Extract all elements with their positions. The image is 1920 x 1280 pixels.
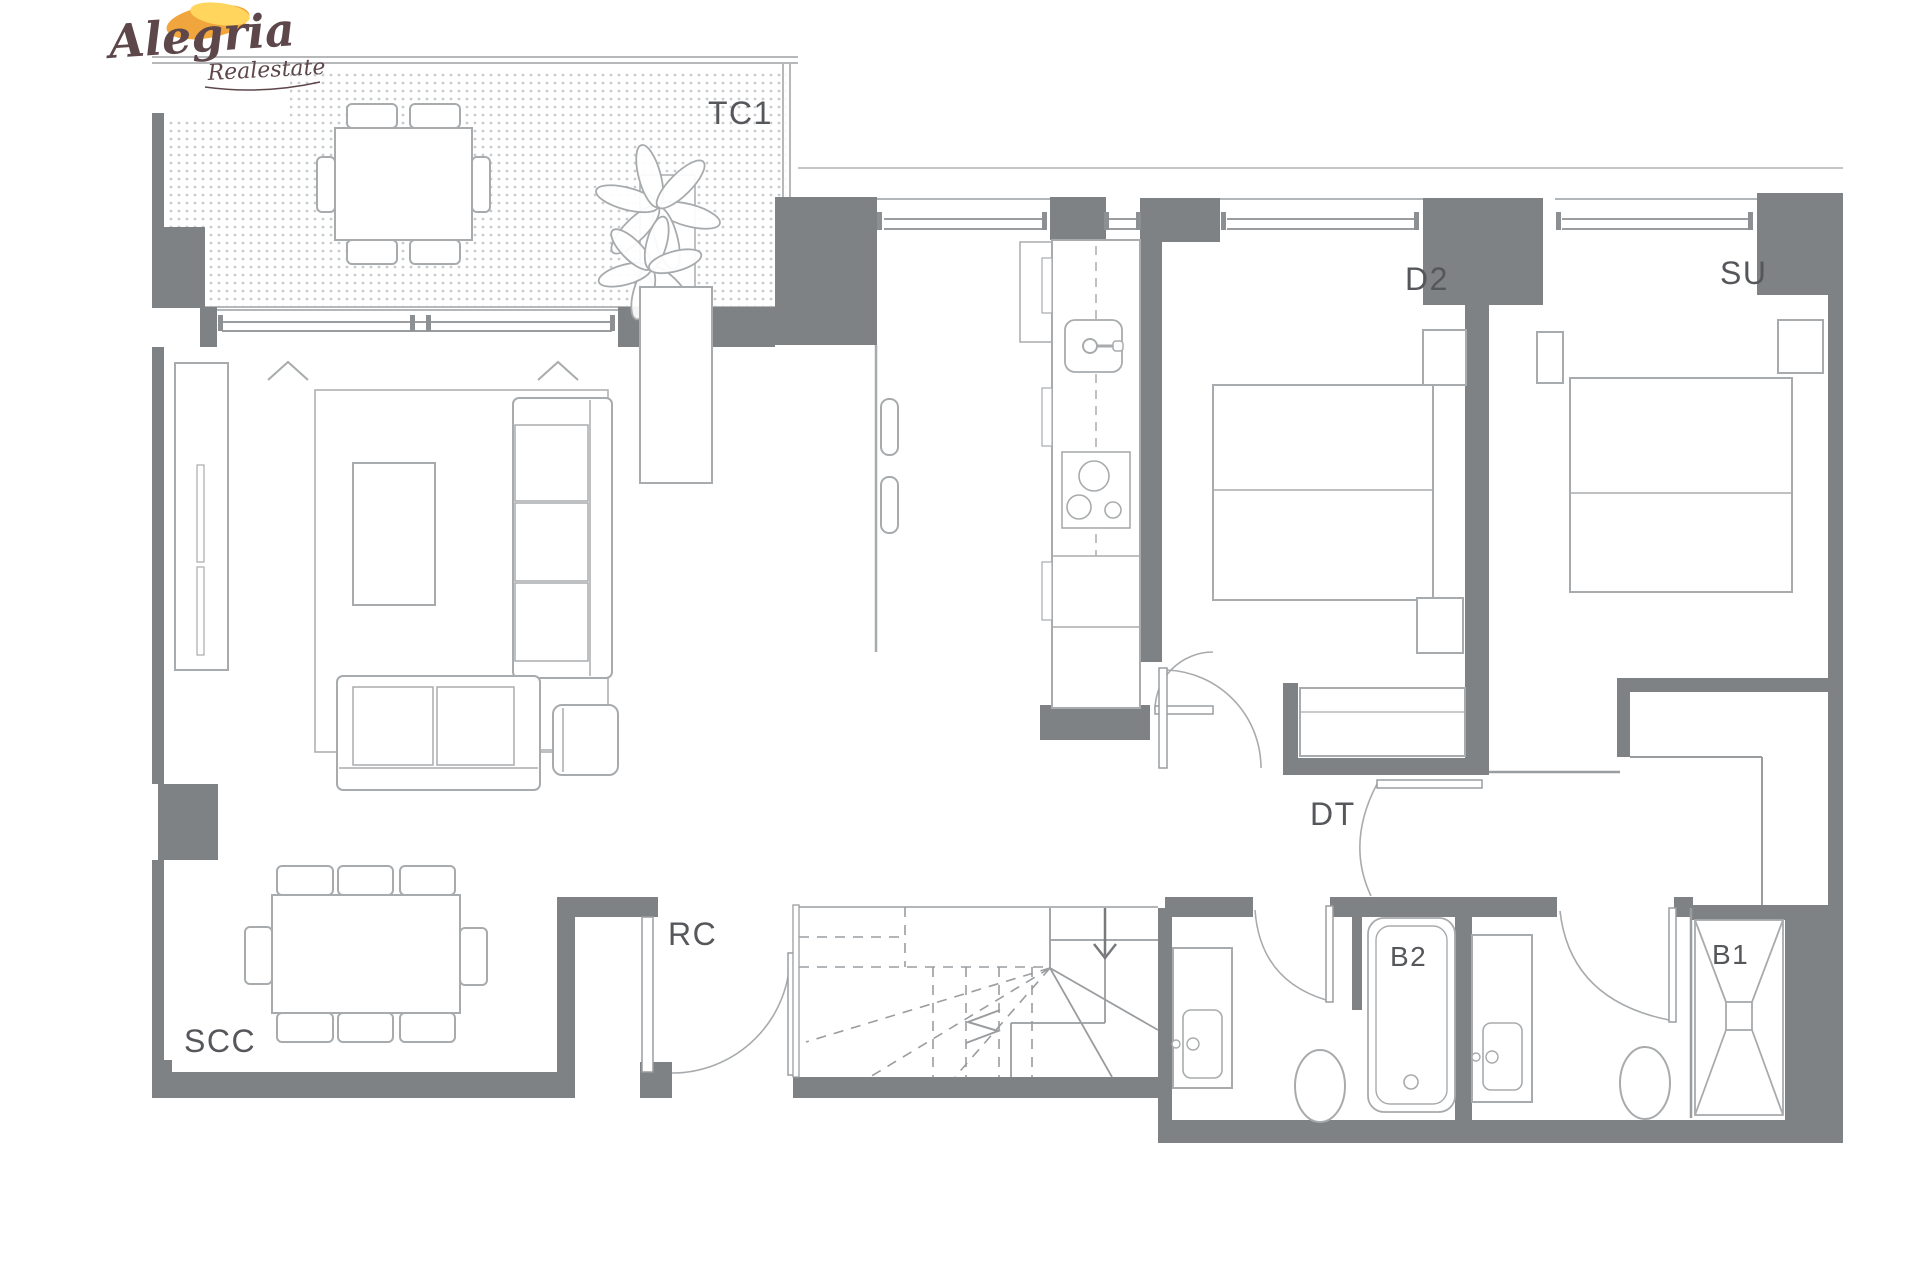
label-bath2: B2 — [1390, 941, 1427, 972]
wall-su-closet-h — [1617, 678, 1828, 692]
wall-su-closet-v — [1617, 692, 1630, 757]
wall-terrace-corner — [775, 197, 877, 345]
label-bath1: B1 — [1712, 939, 1749, 970]
b2-door-leaf — [1326, 906, 1333, 1002]
wall-right — [1828, 295, 1843, 910]
wall-left-mid — [152, 347, 164, 784]
b2-door-arc — [1255, 910, 1326, 1000]
wall-left-block — [152, 227, 205, 308]
b1-toilet — [1620, 1047, 1670, 1119]
d2-door-arc — [1167, 670, 1261, 768]
sofa-right — [513, 398, 612, 678]
wall-stairs-bottom — [793, 1077, 1172, 1098]
wall-left-lower — [152, 860, 164, 1072]
wall-kitchen-d2 — [1140, 240, 1162, 662]
su-furniture — [1537, 320, 1823, 592]
tub-drain-icon — [1404, 1075, 1418, 1089]
wall-d2-south — [1298, 758, 1468, 775]
wall-pier-kitchen — [1050, 197, 1106, 240]
d2-nightstand — [1423, 330, 1466, 385]
b1-door-arc — [1560, 911, 1669, 1020]
wall-d2-stub — [1283, 683, 1298, 775]
wall-d2-su — [1465, 240, 1489, 775]
d2-desk — [1417, 598, 1463, 653]
su-bed — [1570, 378, 1792, 592]
wall-bath-bottom — [1158, 1120, 1800, 1143]
kitchen-sink — [1065, 320, 1123, 372]
dining-chair — [338, 1013, 393, 1042]
dining-set — [245, 866, 487, 1042]
floor-plan-drawing: TC1 D2 SU DT RC SCC B2 B1 Alegria Reales… — [0, 0, 1920, 1280]
d2-wardrobe — [1300, 688, 1465, 756]
breakfast-bar — [876, 345, 898, 652]
floor-plan-page: TC1 D2 SU DT RC SCC B2 B1 Alegria Reales… — [0, 0, 1920, 1280]
wall-b2-top-b — [1330, 897, 1455, 917]
window-segment — [1106, 219, 1139, 229]
su-nightstand-right — [1778, 320, 1823, 373]
brand-logo: Alegria Realestate — [103, 0, 326, 90]
shower-drain-icon — [1726, 1002, 1752, 1030]
entrance-door-arc — [672, 955, 790, 1073]
dining-chair — [277, 1013, 333, 1042]
bar-stool — [881, 399, 898, 455]
wall-b2-b1-divider — [1455, 897, 1472, 1120]
sofa-bottom — [337, 676, 540, 790]
dining-chair — [460, 928, 487, 985]
window-living-south — [217, 310, 618, 331]
wall-shower-top — [1692, 905, 1785, 920]
chevron-icon — [268, 362, 308, 380]
wall-d2-top — [1140, 198, 1220, 242]
label-suite: SU — [1720, 255, 1767, 291]
staircase — [793, 905, 1158, 1077]
wall-b2-top-a — [1165, 897, 1253, 917]
stairs-down-arrow-icon — [1094, 908, 1116, 958]
dining-chair — [277, 866, 333, 895]
bar-stool — [881, 477, 898, 533]
window-d2 — [1220, 199, 1423, 229]
wall-right-bottom — [1785, 905, 1843, 1143]
sideboard-cabinet — [640, 287, 712, 483]
su-nightstand-left — [1537, 332, 1563, 383]
d2-furniture — [1213, 330, 1466, 756]
dining-chair — [338, 866, 393, 895]
dining-chair — [245, 927, 272, 984]
hall-door-arc — [1360, 784, 1377, 896]
chevron-icon — [538, 362, 578, 380]
wall-corner-tr — [1757, 193, 1843, 295]
label-closet: RC — [668, 916, 717, 952]
terrace-table — [335, 128, 472, 240]
terrace-table-set — [317, 104, 490, 264]
stairs-dashed — [799, 907, 1050, 1077]
wall-bath-left — [1158, 908, 1172, 1143]
wall-rc-left — [557, 897, 575, 1077]
label-terrace: TC1 — [708, 95, 773, 131]
hall-door-leaf — [1377, 780, 1482, 788]
wall-b2-partition — [1352, 897, 1362, 1010]
label-hall: DT — [1310, 796, 1356, 832]
b2-toilet — [1295, 1050, 1345, 1122]
wall-kitchen-south — [1040, 705, 1150, 740]
armchair — [540, 705, 618, 775]
wall-b1-top — [1472, 897, 1557, 917]
d2-door-leaf — [1159, 668, 1167, 768]
kitchen-cooktop — [1062, 452, 1130, 528]
wall-window-jamb-left — [200, 307, 217, 347]
ceiling-chevrons — [268, 362, 578, 380]
wall-left-block2 — [158, 784, 218, 860]
stairs-left-edge — [793, 905, 799, 1077]
dining-chair — [400, 1013, 455, 1042]
b1-door-leaf — [1669, 908, 1676, 1022]
label-living: SCC — [184, 1023, 256, 1059]
rc-closet-front — [642, 917, 653, 1072]
wall-left-upper — [152, 113, 164, 227]
stairs-solid — [1011, 908, 1158, 1077]
window-kitchen — [877, 199, 1050, 229]
wall-bottom-scc — [162, 1072, 575, 1098]
dining-chair — [400, 866, 455, 895]
label-bedroom2: D2 — [1405, 261, 1449, 297]
media-cabinet — [175, 363, 228, 670]
coffee-table — [353, 463, 435, 605]
d2-bed — [1213, 385, 1433, 600]
dining-table — [272, 895, 460, 1013]
window-su — [1555, 199, 1757, 229]
